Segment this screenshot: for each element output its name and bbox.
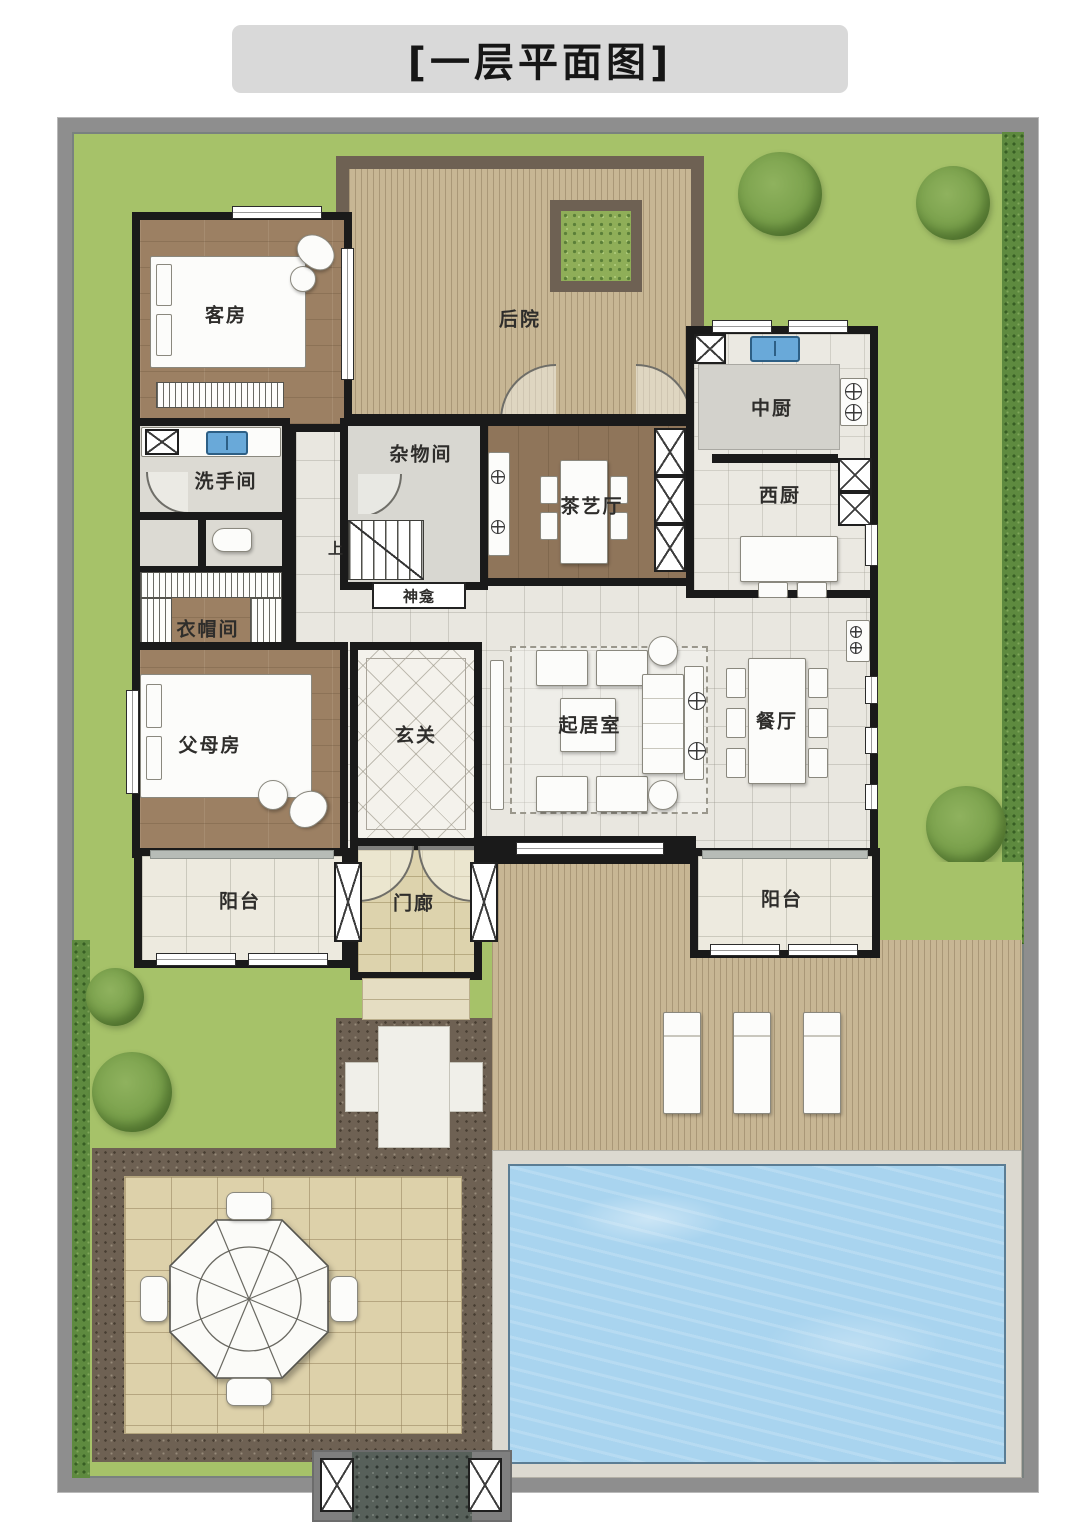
- window: [865, 676, 878, 704]
- sliding-door: [702, 850, 868, 859]
- knob-icon: [688, 692, 706, 710]
- pillow: [146, 736, 162, 780]
- sofa-chaise: [684, 666, 704, 780]
- window: [788, 320, 848, 333]
- balcony-right-label: 阳台: [761, 885, 803, 912]
- floor-plan-canvas: [一层平面图] 后院: [0, 0, 1080, 1528]
- shelf-unit: [654, 524, 686, 572]
- kitchen-cabinet: [694, 334, 726, 364]
- porch-label: 门廊: [393, 889, 435, 916]
- shelf-unit: [654, 476, 686, 524]
- side-table: [648, 636, 678, 666]
- knob-icon: [850, 626, 862, 638]
- washroom-label: 洗手间: [194, 467, 257, 494]
- window: [156, 953, 236, 966]
- side-table: [290, 266, 316, 292]
- knob-icon: [688, 742, 706, 760]
- window: [341, 248, 354, 380]
- tea-cabinet: [488, 452, 510, 556]
- armchair: [596, 650, 648, 686]
- dining-room-label: 餐厅: [756, 707, 798, 734]
- stool: [797, 582, 827, 598]
- parents-room-label: 父母房: [178, 731, 241, 758]
- foyer-label: 玄关: [395, 721, 437, 748]
- chinese-kitchen-label: 中厨: [751, 394, 793, 421]
- window: [712, 320, 772, 333]
- side-table: [258, 780, 288, 810]
- knob-icon: [491, 470, 505, 484]
- sofa: [642, 674, 684, 774]
- window: [865, 784, 878, 810]
- porch-pillar: [334, 862, 362, 942]
- chair: [726, 708, 746, 738]
- balcony-left-label: 阳台: [219, 887, 261, 914]
- knob-icon: [850, 642, 862, 654]
- pantry-unit: [838, 458, 872, 492]
- toilet: [212, 528, 252, 552]
- burner-icon: [845, 383, 862, 400]
- knob-icon: [491, 520, 505, 534]
- western-kitchen-label: 西厨: [759, 481, 801, 508]
- window: [232, 206, 322, 219]
- chair: [726, 748, 746, 778]
- toilet-divider-wall: [198, 514, 206, 572]
- living-room-label: 起居室: [558, 711, 621, 738]
- pillow: [156, 314, 172, 356]
- armchair: [536, 650, 588, 686]
- washer: [145, 429, 179, 455]
- kitchen-divider-wall: [712, 454, 838, 463]
- tea-hall-label: 茶艺厅: [560, 492, 623, 519]
- window: [788, 944, 858, 956]
- chair: [540, 512, 558, 540]
- window: [865, 524, 878, 566]
- wardrobe: [250, 598, 282, 644]
- window: [126, 690, 139, 794]
- cloakroom-label: 衣帽间: [176, 615, 239, 642]
- house: 客房 洗手间 衣帽间 父母房 杂物间 上: [0, 0, 1080, 1528]
- chair: [540, 476, 558, 504]
- sink: [206, 431, 248, 455]
- sliding-door: [150, 850, 334, 859]
- burner-icon: [845, 404, 862, 421]
- porch-steps: [362, 978, 470, 1020]
- stairs-up-label: 上: [328, 538, 344, 559]
- armchair: [536, 776, 588, 812]
- rug: [156, 382, 284, 408]
- porch-pillar: [470, 862, 498, 942]
- side-table: [648, 780, 678, 810]
- window: [865, 727, 878, 754]
- window: [248, 953, 328, 966]
- shrine-label: 神龛: [403, 586, 435, 607]
- toilet-room: [132, 512, 290, 574]
- island-counter: [740, 536, 838, 582]
- kitchen-sink: [750, 336, 800, 362]
- storage-room-label: 杂物间: [389, 440, 452, 467]
- chair: [808, 748, 828, 778]
- chair: [726, 668, 746, 698]
- pillow: [146, 684, 162, 728]
- guest-room-label: 客房: [205, 301, 247, 328]
- chair: [808, 708, 828, 738]
- chair: [808, 668, 828, 698]
- pantry-unit: [838, 492, 872, 526]
- wardrobe: [140, 598, 172, 644]
- pillow: [156, 264, 172, 306]
- stool: [758, 582, 788, 598]
- tv-console: [490, 660, 504, 810]
- backyard-label: 后院: [499, 305, 541, 332]
- wardrobe: [140, 572, 282, 598]
- window: [710, 944, 780, 956]
- stairs-break-line: [348, 520, 424, 580]
- armchair: [596, 776, 648, 812]
- window: [516, 842, 664, 855]
- shelf-unit: [654, 428, 686, 476]
